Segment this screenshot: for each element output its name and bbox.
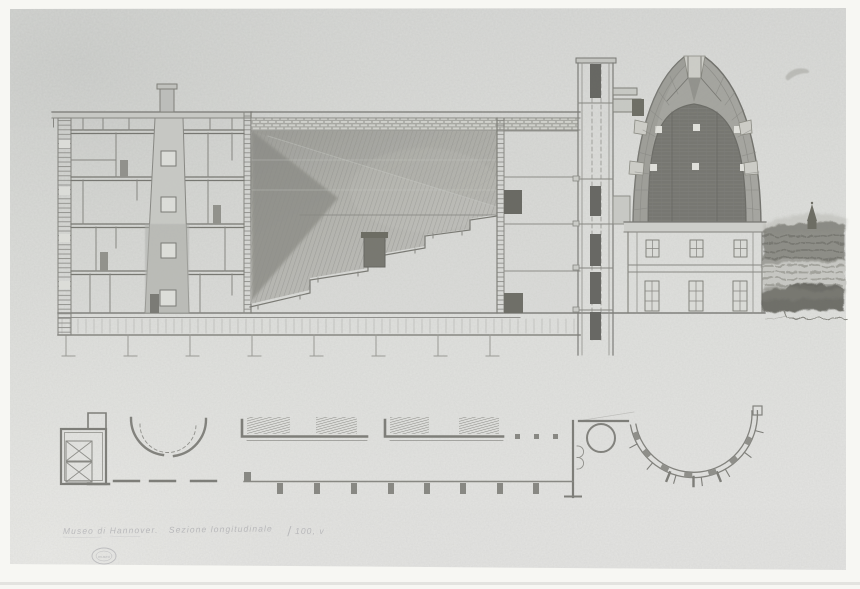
svg-text:100, v: 100, v xyxy=(295,526,325,536)
svg-text:museo: museo xyxy=(98,554,111,559)
